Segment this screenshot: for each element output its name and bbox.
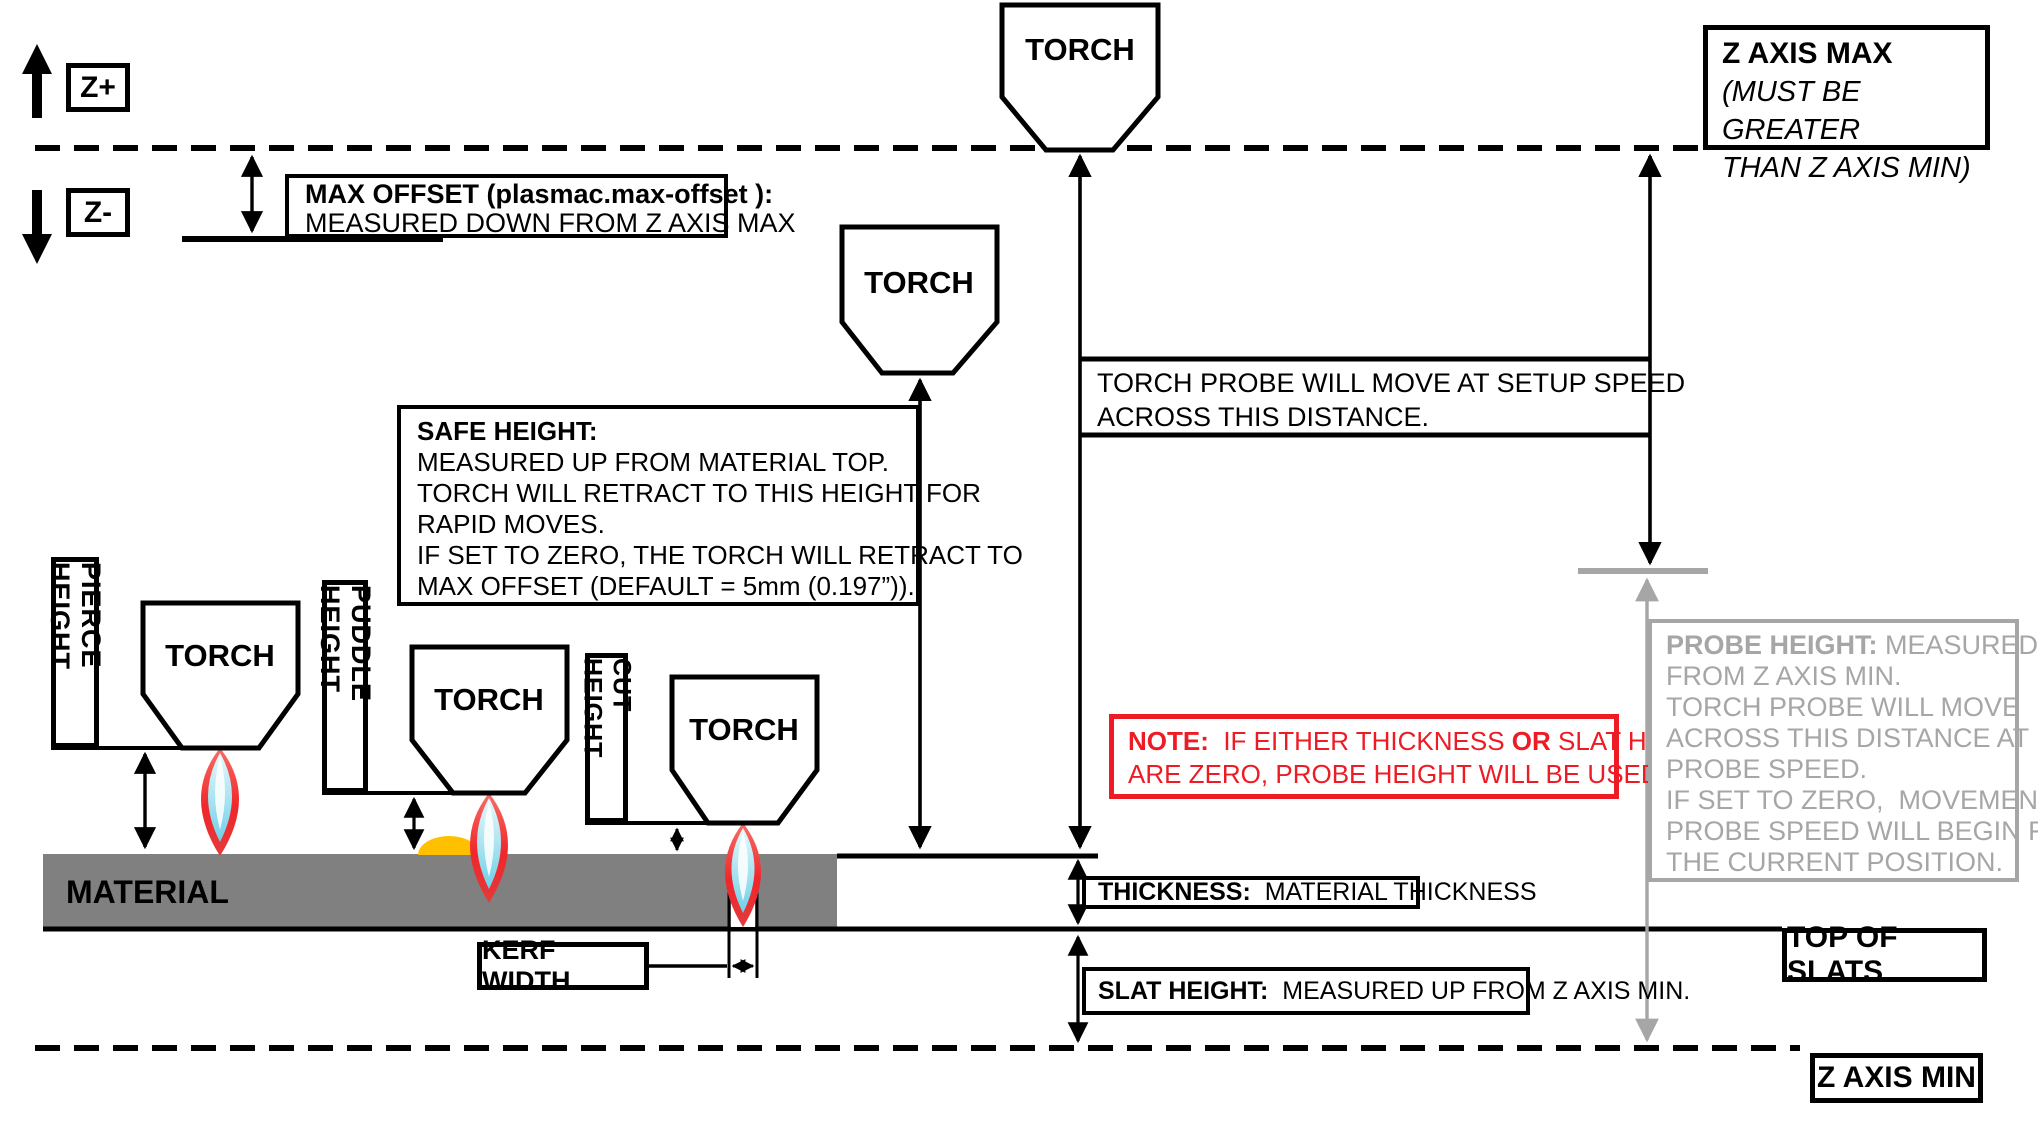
kerf-width-text: KERF WIDTH [482, 935, 644, 997]
note-line1: NOTE: IF EITHER THICKNESS OR SLAT HEIGHT [1128, 725, 1614, 758]
probe-height-line5: PROBE SPEED. [1666, 754, 2015, 785]
slat-height-box: SLAT HEIGHT: MEASURED UP FROM Z AXIS MIN… [1082, 967, 1530, 1015]
top-of-slats-text: TOP OF SLATS [1787, 921, 1982, 989]
slat-height-prefix: SLAT HEIGHT: [1098, 977, 1268, 1006]
z-plus-arrow-icon [22, 44, 52, 118]
z-axis-max-note2: THAN Z AXIS MIN) [1722, 149, 1985, 187]
torch-probe-note-line2: ACROSS THIS DISTANCE. [1097, 400, 1637, 434]
torch-label: TORCH [1025, 32, 1135, 67]
torch-probe-note-line1: TORCH PROBE WILL MOVE AT SETUP SPEED [1097, 366, 1637, 400]
safe-height-line2: TORCH WILL RETRACT TO THIS HEIGHT FOR [417, 478, 916, 509]
max-offset-line1: MAX OFFSET (plasmac.max-offset ): [305, 180, 724, 209]
material-label: MATERIAL [66, 874, 229, 911]
torch-probe-note: TORCH PROBE WILL MOVE AT SETUP SPEED ACR… [1097, 366, 1637, 434]
safe-height-title: SAFE HEIGHT: [417, 416, 916, 447]
z-minus-text: Z- [84, 196, 112, 230]
torch-label: TORCH [165, 638, 275, 673]
thickness-prefix: THICKNESS: [1098, 878, 1251, 907]
plasmac-heights-diagram: TORCH TORCH TORCH TORCH TORCH Z+ Z- MAX … [0, 0, 2038, 1145]
torch-label: TORCH [434, 682, 544, 717]
torch-label: TORCH [864, 265, 974, 300]
probe-height-prefix: PROBE HEIGHT: [1666, 630, 1878, 660]
z-axis-min-text: Z AXIS MIN [1817, 1061, 1976, 1095]
slat-height-text: MEASURED UP FROM Z AXIS MIN. [1268, 977, 1690, 1006]
cut-height-text: CUT HEIGHT [578, 658, 636, 818]
thickness-text: MATERIAL THICKNESS [1251, 878, 1537, 907]
probe-height-line1: PROBE HEIGHT: MEASURED UP [1666, 630, 2015, 661]
top-of-slats-box: TOP OF SLATS [1782, 928, 1987, 982]
probe-height-line3: TORCH PROBE WILL MOVE [1666, 692, 2015, 723]
probe-height-line4: ACROSS THIS DISTANCE AT [1666, 723, 2015, 754]
torch-safe-height: TORCH [842, 227, 997, 373]
torch-label: TORCH [689, 712, 799, 747]
torch-cut: TORCH [672, 677, 817, 823]
cut-height-label: CUT HEIGHT [585, 653, 628, 823]
z-plus-text: Z+ [80, 71, 116, 105]
note-line2: ARE ZERO, PROBE HEIGHT WILL BE USED. [1128, 758, 1614, 791]
z-axis-max-box: Z AXIS MAX (MUST BE GREATER THAN Z AXIS … [1703, 25, 1990, 150]
max-offset-box: MAX OFFSET (plasmac.max-offset ): MEASUR… [285, 174, 728, 238]
pierce-height-text: PIERCE HEIGHT [44, 562, 106, 743]
probe-height-line1-rest: MEASURED UP [1878, 630, 2038, 660]
note-or: OR [1512, 726, 1551, 756]
z-plus-label: Z+ [66, 63, 130, 112]
max-offset-line2: MEASURED DOWN FROM Z AXIS MAX [305, 209, 724, 238]
safe-height-line5: MAX OFFSET (DEFAULT = 5mm (0.197”)). [417, 571, 916, 602]
z-axis-max-note1: (MUST BE GREATER [1722, 73, 1985, 149]
probe-height-line8: THE CURRENT POSITION. [1666, 847, 2015, 878]
torch-pierce: TORCH [143, 603, 298, 748]
probe-height-line7: PROBE SPEED WILL BEGIN FROM [1666, 816, 2015, 847]
safe-height-line4: IF SET TO ZERO, THE TORCH WILL RETRACT T… [417, 540, 916, 571]
kerf-width-box: KERF WIDTH [477, 942, 649, 990]
safe-height-line3: RAPID MOVES. [417, 509, 916, 540]
puddle-height-text: PUDDLE HEIGHT [314, 585, 376, 788]
pierce-height-label: PIERCE HEIGHT [51, 557, 99, 748]
z-axis-max-title: Z AXIS MAX [1722, 35, 1985, 73]
pierce-flame-icon [201, 748, 239, 856]
puddle-height-label: PUDDLE HEIGHT [322, 580, 368, 793]
probe-height-box: PROBE HEIGHT: MEASURED UP FROM Z AXIS MI… [1648, 619, 2019, 882]
torch-z-max: TORCH [1002, 5, 1158, 150]
safe-height-box: SAFE HEIGHT: MEASURED UP FROM MATERIAL T… [397, 405, 920, 606]
safe-height-line1: MEASURED UP FROM MATERIAL TOP. [417, 447, 916, 478]
z-minus-label: Z- [66, 188, 130, 237]
note-seg1: IF EITHER THICKNESS [1209, 726, 1512, 756]
probe-height-line2: FROM Z AXIS MIN. [1666, 661, 2015, 692]
z-axis-min-box: Z AXIS MIN [1810, 1053, 1983, 1103]
note-prefix: NOTE: [1128, 726, 1209, 756]
note-box: NOTE: IF EITHER THICKNESS OR SLAT HEIGHT… [1109, 714, 1619, 799]
thickness-box: THICKNESS: MATERIAL THICKNESS [1082, 876, 1420, 909]
torch-puddle: TORCH [412, 647, 567, 793]
z-minus-arrow-icon [22, 190, 52, 264]
probe-height-line6: IF SET TO ZERO, MOVEMENT AT [1666, 785, 2015, 816]
